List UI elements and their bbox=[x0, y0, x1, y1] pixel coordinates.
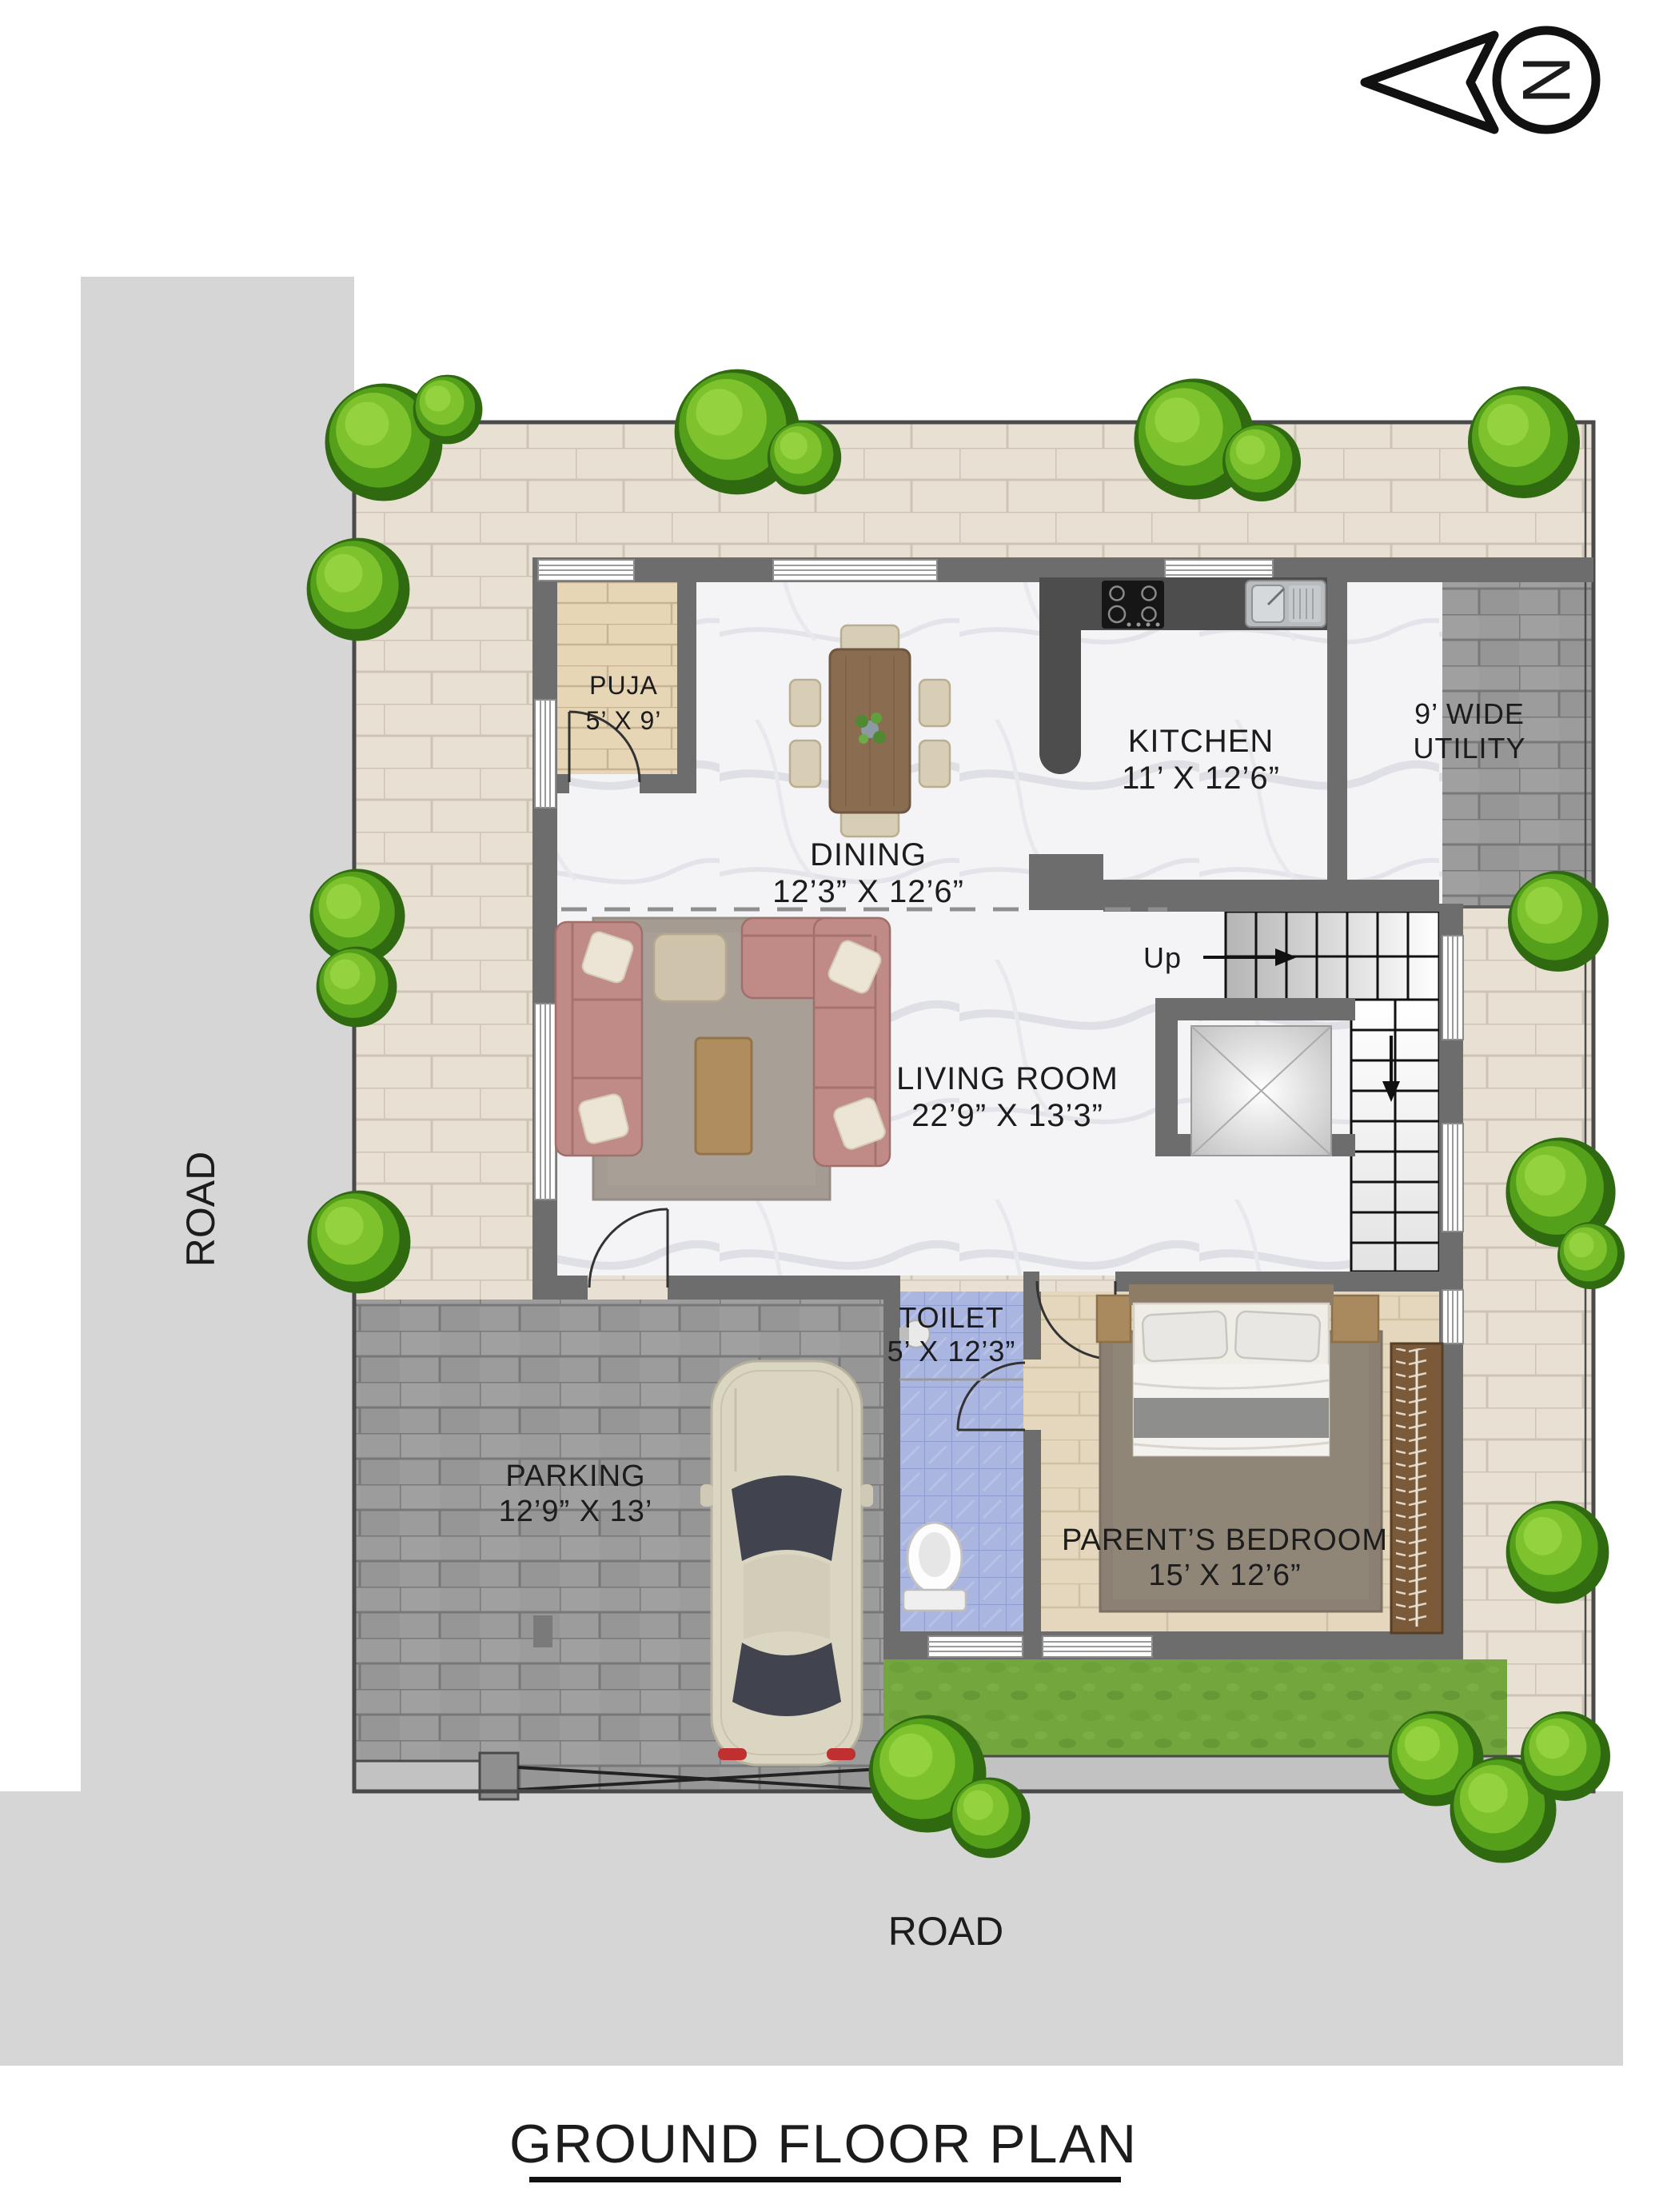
living-furniture bbox=[556, 918, 890, 1200]
side-mirror bbox=[860, 1484, 873, 1507]
coffee-table bbox=[696, 1038, 752, 1154]
bedroom-dims: 15’ X 12’6” bbox=[1148, 1559, 1301, 1592]
side-mirror bbox=[700, 1484, 713, 1507]
window bbox=[1043, 1636, 1152, 1657]
drawing-title: GROUND FLOOR PLAN bbox=[509, 2114, 1138, 2182]
title-underline bbox=[529, 2177, 1121, 2182]
north-indicator: N bbox=[1365, 30, 1596, 130]
pillow bbox=[577, 1092, 629, 1144]
car-roof bbox=[744, 1555, 830, 1639]
utility-label-line1: 9’ WIDE bbox=[1414, 697, 1525, 730]
living-dims: 22’9” X 13’3” bbox=[911, 1098, 1103, 1133]
taillight bbox=[718, 1748, 747, 1760]
bedroom-label: PARENT’S BEDROOM bbox=[1062, 1523, 1388, 1557]
kitchen-sink bbox=[1246, 581, 1326, 627]
window bbox=[1442, 1290, 1463, 1344]
toilet-label: TOILET bbox=[899, 1301, 1003, 1334]
taillight bbox=[827, 1748, 855, 1760]
toilet-dims: 5’ X 12’3” bbox=[887, 1335, 1016, 1368]
kitchen-dims: 11’ X 12’6” bbox=[1122, 761, 1280, 796]
page-title: GROUND FLOOR PLAN bbox=[509, 2114, 1138, 2174]
dining-chair bbox=[790, 741, 820, 787]
parking-dims: 12’9” X 13’ bbox=[499, 1495, 653, 1528]
north-arrow-icon bbox=[1365, 35, 1494, 130]
kitchen-label: KITCHEN bbox=[1128, 724, 1274, 759]
nightstand bbox=[1332, 1296, 1378, 1342]
window bbox=[928, 1636, 1023, 1657]
window bbox=[538, 560, 634, 581]
left-road-label: ROAD bbox=[178, 1152, 223, 1267]
dining-chair bbox=[919, 680, 950, 726]
headboard bbox=[1129, 1284, 1334, 1305]
car bbox=[700, 1361, 873, 1765]
floor-plan-canvas: PUJA 5’ X 9’ DINING 12’3” X 12’6” KITCHE… bbox=[0, 0, 1679, 2212]
bottom-road-label: ROAD bbox=[888, 1909, 1003, 1954]
puja-dims: 5’ X 9’ bbox=[586, 706, 662, 735]
puja-label: PUJA bbox=[589, 671, 658, 700]
parking-label: PARKING bbox=[505, 1459, 645, 1493]
ottoman bbox=[654, 934, 726, 1001]
ground-floor-plan-page: PUJA 5’ X 9’ DINING 12’3” X 12’6” KITCHE… bbox=[0, 0, 1679, 2212]
nightstand bbox=[1097, 1296, 1131, 1342]
wardrobe bbox=[1391, 1344, 1442, 1633]
wc bbox=[903, 1523, 966, 1611]
window bbox=[773, 560, 937, 581]
pillow bbox=[1143, 1311, 1228, 1361]
dining-label: DINING bbox=[810, 837, 927, 872]
window bbox=[1442, 936, 1463, 1040]
window bbox=[535, 1004, 556, 1200]
double-bed bbox=[1134, 1304, 1329, 1455]
north-letter: N bbox=[1509, 56, 1584, 105]
dining-chair bbox=[919, 741, 950, 787]
dining-dims: 12’3” X 12’6” bbox=[772, 874, 964, 909]
left-road bbox=[81, 277, 354, 1796]
sofa-left bbox=[556, 922, 642, 1156]
window bbox=[1442, 1124, 1463, 1232]
pillow bbox=[1235, 1311, 1321, 1361]
windshield bbox=[732, 1475, 842, 1561]
window bbox=[535, 700, 556, 808]
bottom-road bbox=[0, 1791, 1623, 2066]
hob bbox=[1102, 581, 1164, 629]
living-label: LIVING ROOM bbox=[896, 1061, 1119, 1096]
up-label: Up bbox=[1143, 941, 1182, 974]
dining-chair bbox=[790, 680, 820, 726]
utility-label-line2: UTILITY bbox=[1413, 732, 1525, 765]
